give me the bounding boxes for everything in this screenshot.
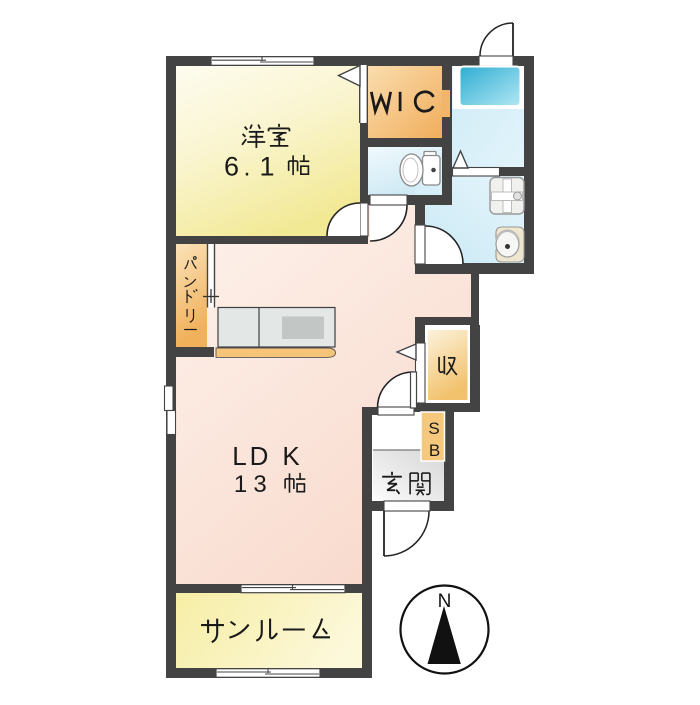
svg-text:B: B (429, 441, 440, 460)
svg-text:D: D (250, 441, 269, 471)
svg-text:S: S (428, 419, 439, 438)
svg-text:3: 3 (253, 471, 266, 498)
svg-text:K: K (282, 441, 300, 471)
svg-text:1: 1 (259, 152, 274, 182)
svg-text:L: L (232, 441, 246, 471)
svg-text:.: . (244, 154, 251, 182)
svg-text:6: 6 (224, 152, 239, 182)
svg-text:1: 1 (234, 471, 247, 498)
